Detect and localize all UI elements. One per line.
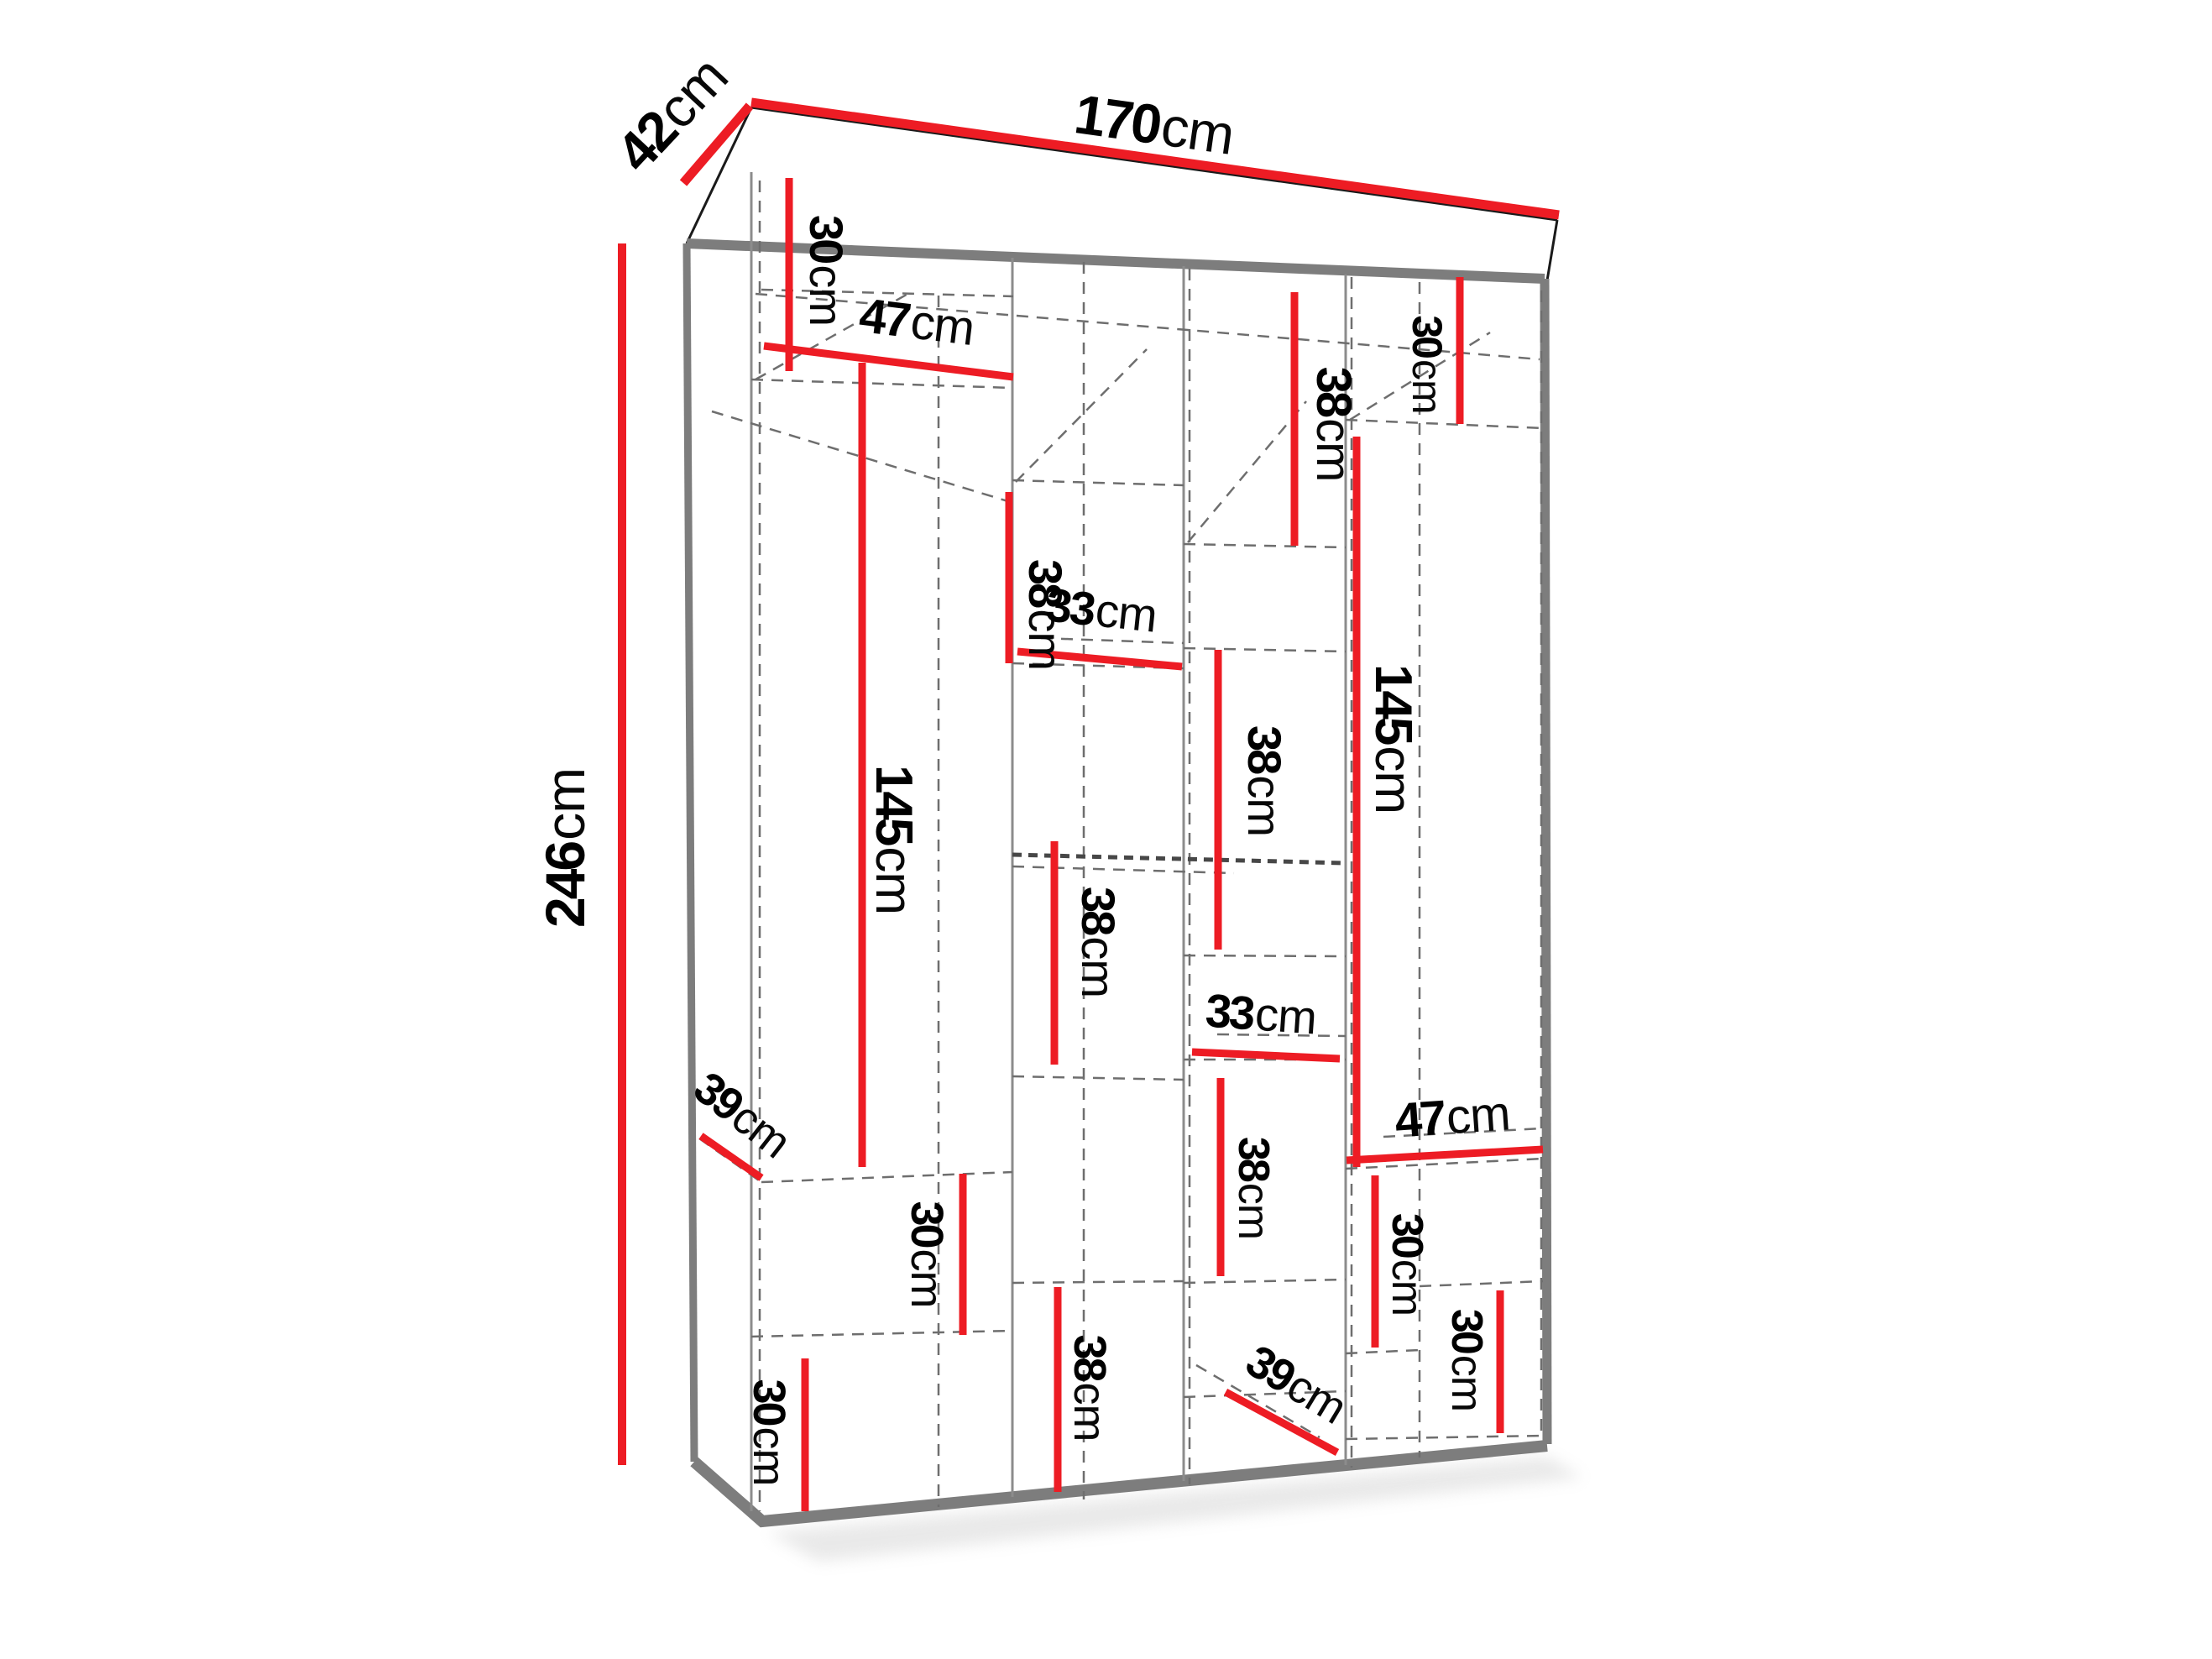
dim-line-c4-47 bbox=[1347, 1149, 1543, 1160]
dim-label-c3-33: 33cm bbox=[1204, 987, 1318, 1041]
dim-label-c2-bot-38: 38cm bbox=[1067, 1334, 1112, 1441]
mid-shelf-dashed-line bbox=[1012, 855, 1346, 863]
dim-label-height-246: 246cm bbox=[537, 768, 593, 928]
dim-label-c4-bot-30: 30cm bbox=[1445, 1309, 1488, 1411]
dim-label-c1-145: 145cm bbox=[867, 765, 919, 914]
dim-label-c1-mid-30: 30cm bbox=[904, 1201, 949, 1307]
interior-partitions bbox=[751, 172, 1346, 1511]
dim-label-c1-47: 47cm bbox=[857, 291, 977, 353]
dim-label-c4-mid-30: 30cm bbox=[1385, 1213, 1429, 1316]
dim-line-c3-33 bbox=[1192, 1052, 1340, 1059]
wardrobe-dimension-diagram: 170cm 42cm 246cm 30cm 47cm 145cm 38cm 33… bbox=[0, 0, 2212, 1659]
dim-label-c1-bot-30: 30cm bbox=[746, 1379, 792, 1485]
dim-label-c2-mid-38: 38cm bbox=[1075, 887, 1122, 997]
dim-label-c3-top-38: 38cm bbox=[1309, 367, 1357, 482]
dim-line-c1-47 bbox=[764, 346, 1013, 377]
dim-label-c2-33: 33cm bbox=[1043, 581, 1158, 639]
dim-label-c4-top-30: 30cm bbox=[1406, 315, 1448, 413]
dim-label-c3-lower-38: 38cm bbox=[1232, 1137, 1275, 1239]
dim-label-c4-47: 47cm bbox=[1394, 1089, 1512, 1145]
dim-label-c3-upper-38: 38cm bbox=[1241, 725, 1288, 836]
dim-label-c3-145: 145cm bbox=[1367, 664, 1419, 814]
dim-label-c1-top-30: 30cm bbox=[803, 215, 850, 326]
